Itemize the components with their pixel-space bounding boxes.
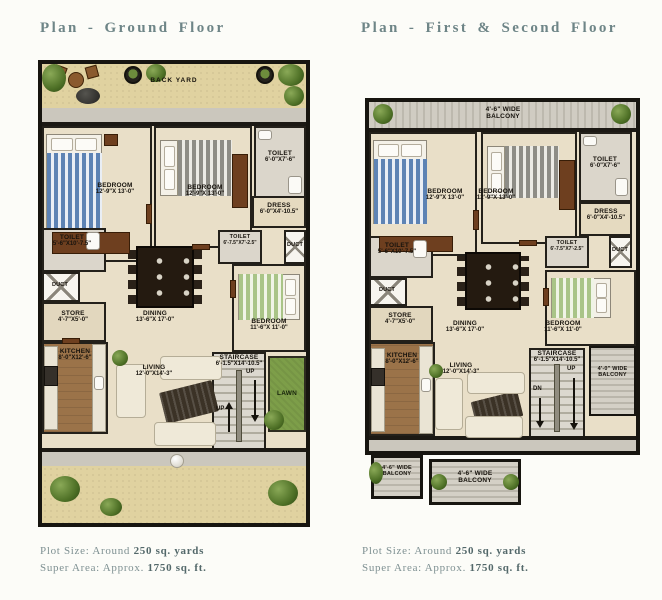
up-arrow-icon xyxy=(228,404,230,432)
bedroom-3-label: BEDROOM 11'-6"X 11'-0" xyxy=(234,318,304,331)
living-label: LIVING 12'-0"X14'-3" xyxy=(126,364,182,377)
lawn-label: LAWN xyxy=(268,390,306,397)
dining-label: DINING 13'-6"X 17'-0" xyxy=(120,310,190,323)
bedroom-2-label: BEDROOM 12'-9"X 13'-0" xyxy=(465,188,527,201)
planter-icon xyxy=(256,66,274,84)
down-arrow-icon xyxy=(254,380,256,420)
down-arrow-icon xyxy=(539,398,541,426)
toilet-mid-label: TOILET 6'-7.5"X7'-2.5" xyxy=(545,240,589,252)
sphere-planter-icon xyxy=(170,454,184,468)
sink-icon xyxy=(583,136,597,146)
stair-rail xyxy=(236,370,242,442)
kitchen-label: KITCHEN 8'-0"X12'-6" xyxy=(46,348,104,361)
fridge-icon xyxy=(44,366,58,386)
toilet-left-label: TOILET 5'-6"X10'-7.5" xyxy=(370,242,424,255)
bottom-left-balcony-label: 4'-6" WIDE BALCONY xyxy=(373,465,421,477)
plant-icon xyxy=(373,104,393,124)
super-area-value: 1750 sq. ft. xyxy=(147,562,206,574)
blanket xyxy=(238,274,283,320)
grill-icon xyxy=(76,88,100,104)
dining-table-icon xyxy=(465,252,521,310)
plot-size-text: Plot Size: Around xyxy=(40,545,134,557)
walkway xyxy=(42,108,306,122)
page: Plan - Ground Floor Plan - First & Secon… xyxy=(0,0,662,600)
toilet-left-label: TOILET 5'-6"X10'-7.5" xyxy=(44,234,100,247)
sofa-icon xyxy=(154,422,216,446)
store-label: STORE 4'-7"X5'-0" xyxy=(44,310,102,323)
side-table-icon xyxy=(104,134,118,146)
staircase-label: STAIRCASE 6'-1.5"X14'-10.5" xyxy=(208,354,270,367)
dining-chairs xyxy=(457,256,465,306)
toilet-top-right-label: TOILET 6'-0"X7'-6" xyxy=(581,156,629,169)
living-label: LIVING 12'-0"X14'-3" xyxy=(433,362,489,375)
super-area-line: Super Area: Approx. 1750 sq. ft. xyxy=(362,560,529,577)
plant-icon xyxy=(503,474,519,490)
bed-icon xyxy=(373,140,427,224)
top-balcony-label: 4'-6" WIDE BALCONY xyxy=(453,106,553,120)
super-area-value: 1750 sq. ft. xyxy=(469,562,528,574)
down-arrow-icon xyxy=(573,378,575,428)
dining-chairs xyxy=(521,256,529,306)
plant-icon xyxy=(42,64,66,92)
toilet-icon xyxy=(615,178,628,196)
plot-size-line: Plot Size: Around 250 sq. yards xyxy=(362,543,529,560)
first-second-floor-caption: Plot Size: Around 250 sq. yards Super Ar… xyxy=(362,543,529,577)
plant-icon xyxy=(278,64,304,86)
bottom-center-balcony-label: 4'-6" WIDE BALCONY xyxy=(445,470,505,484)
dress-label: DRESS 6'-0"X4'-10.5" xyxy=(581,208,631,221)
up-label: UP xyxy=(246,369,254,375)
door-icon xyxy=(192,244,210,250)
sink-icon xyxy=(258,130,272,140)
super-area-text: Super Area: Approx. xyxy=(40,562,147,574)
super-area-line: Super Area: Approx. 1750 sq. ft. xyxy=(40,560,207,577)
plot-size-text: Plot Size: Around xyxy=(362,545,456,557)
toilet-icon xyxy=(288,176,302,194)
first-second-floor-title: Plan - First & Second Floor xyxy=(361,20,618,37)
sofa-icon xyxy=(435,378,463,430)
up-label: UP xyxy=(216,406,224,412)
plant-icon xyxy=(100,498,122,516)
plant-icon xyxy=(284,86,304,106)
plot-size-value: 250 sq. yards xyxy=(456,545,527,557)
bed-icon xyxy=(238,274,300,320)
bed-icon xyxy=(46,134,102,228)
ground-floor-title: Plan - Ground Floor xyxy=(40,20,226,37)
patio-table-icon xyxy=(68,72,84,88)
duct-right-label: DUCT xyxy=(282,242,308,248)
bedroom-3-label: BEDROOM 11'-6"X 11'-0" xyxy=(527,320,599,333)
right-balcony xyxy=(589,346,636,416)
wardrobe-icon xyxy=(232,154,248,208)
dining-table-icon xyxy=(136,246,194,308)
plot-size-line: Plot Size: Around 250 sq. yards xyxy=(40,543,207,560)
duct-left-label: DUCT xyxy=(42,282,78,288)
wardrobe-icon xyxy=(559,160,575,210)
toilet-mid-label: TOILET 6'-7.5"X7'-2.5" xyxy=(218,234,262,246)
fridge-icon xyxy=(371,368,385,386)
front-yard xyxy=(42,466,306,523)
bedroom-1-label: BEDROOM 12'-9"X 13'-0" xyxy=(77,182,153,195)
kitchen-label: KITCHEN 8'-0"X12'-6" xyxy=(373,352,431,365)
dn-label: DN xyxy=(533,386,542,392)
store-label: STORE 4'-7"X5'-0" xyxy=(371,312,429,325)
ground-floor-caption: Plot Size: Around 250 sq. yards Super Ar… xyxy=(40,543,207,577)
sink-icon xyxy=(94,376,104,390)
door-icon xyxy=(519,240,537,246)
walkway xyxy=(369,440,636,451)
plant-icon xyxy=(50,476,80,502)
plant-icon xyxy=(264,410,284,430)
plant-icon xyxy=(611,104,631,124)
dress-label: DRESS 6'-0"X4'-10.5" xyxy=(254,202,304,215)
bed-icon xyxy=(551,278,611,318)
dining-chairs xyxy=(194,250,202,304)
duct-right-label: DUCT xyxy=(607,247,633,253)
dining-chairs xyxy=(128,250,136,304)
first-second-floor-plan: 4'-6" WIDE BALCONY BEDROOM 12'-9"X 13'-0… xyxy=(365,98,640,455)
bedroom-2-label: BEDROOM 12'-9"X 13'-0" xyxy=(168,184,242,197)
door-icon xyxy=(473,210,479,230)
back-yard-label: BACK YARD xyxy=(114,77,234,84)
door-icon xyxy=(62,338,80,344)
super-area-text: Super Area: Approx. xyxy=(362,562,469,574)
plot-size-value: 250 sq. yards xyxy=(134,545,205,557)
up-label: UP xyxy=(567,366,575,372)
plant-icon xyxy=(268,480,298,506)
duct-left-label: DUCT xyxy=(369,287,405,293)
sofa-icon xyxy=(465,416,523,438)
staircase-label: STAIRCASE 6'-1.5"X14'-10.5" xyxy=(525,350,589,363)
dining-label: DINING 13'-6"X 17'-0" xyxy=(430,320,500,333)
blanket xyxy=(551,278,594,318)
sink-icon xyxy=(421,378,431,392)
door-icon xyxy=(230,280,236,298)
stair-rail xyxy=(554,364,560,432)
door-icon xyxy=(146,204,152,224)
toilet-top-right-label: TOILET 6'-0"X7'-6" xyxy=(256,150,304,163)
ground-floor-plan: BACK YARD BEDROOM 12'-9"X 13'-0" BEDROOM… xyxy=(38,60,310,527)
door-icon xyxy=(543,288,549,306)
right-balcony-label: 4'-0" WIDE BALCONY xyxy=(590,366,635,378)
sofa-icon xyxy=(467,372,525,394)
rug-icon xyxy=(159,380,219,424)
